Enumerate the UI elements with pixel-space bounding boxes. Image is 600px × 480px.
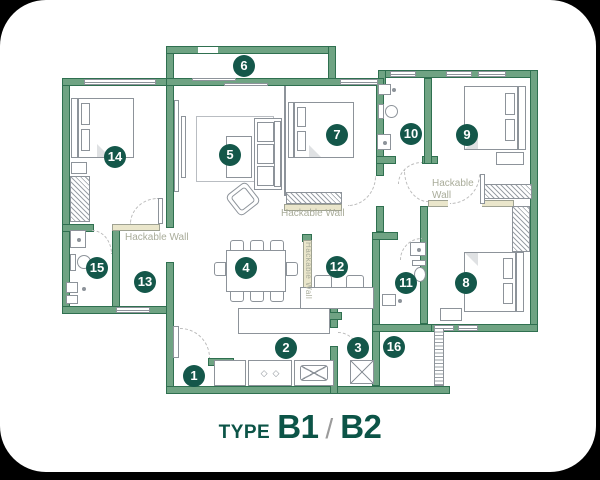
- window: [446, 71, 472, 77]
- title-separator: /: [325, 413, 333, 445]
- sofa-cushion: [257, 166, 274, 186]
- room-badge-5: 5: [219, 144, 241, 166]
- sofa-cushion: [257, 144, 274, 164]
- plan-title: TYPE B1 / B2: [0, 408, 600, 446]
- title-type-label: TYPE: [219, 422, 271, 444]
- shower-head-icon: [398, 299, 402, 303]
- sink-basin: [300, 365, 328, 381]
- sofa-back: [274, 121, 281, 187]
- wardrobe-icon: [484, 184, 532, 199]
- toilet-tank: [70, 254, 76, 271]
- wardrobe-icon: [286, 192, 342, 204]
- room-badge-4: 4: [235, 257, 257, 279]
- sink-icon: [377, 134, 391, 150]
- nightstand-icon: [440, 308, 462, 321]
- wall: [112, 226, 120, 314]
- pillow: [297, 107, 306, 127]
- shower-icon: [378, 84, 391, 95]
- balcony-opening: [198, 47, 218, 53]
- door-arc: [130, 198, 158, 224]
- door-leaf: [158, 198, 163, 224]
- hackable-wall-label: Hackable Wall: [125, 232, 220, 244]
- pillow: [81, 129, 90, 151]
- wall: [166, 78, 174, 228]
- wall: [62, 78, 70, 314]
- washing-machine-icon: [350, 360, 374, 384]
- wall: [376, 156, 396, 164]
- room-badge-16: 16: [383, 336, 405, 358]
- toilet-tank: [378, 104, 384, 119]
- tap-icon: [82, 287, 86, 291]
- room-badge-15: 15: [86, 257, 108, 279]
- nightstand-icon: [71, 162, 87, 174]
- window: [116, 307, 150, 313]
- armchair-seat: [230, 186, 255, 211]
- pillow: [81, 103, 90, 125]
- toilet-tank: [412, 260, 426, 266]
- bed-headboard: [516, 252, 524, 312]
- partition-wall: [284, 86, 286, 196]
- door-leaf: [173, 326, 179, 358]
- room-badge-2: 2: [275, 337, 297, 359]
- wall: [372, 232, 398, 240]
- door-arc: [404, 170, 428, 202]
- wardrobe-icon: [70, 176, 90, 222]
- window: [340, 79, 378, 85]
- room-badge-9: 9: [456, 124, 478, 146]
- wall: [424, 78, 432, 164]
- title-plan-b: B2: [340, 408, 381, 446]
- chair-icon: [286, 262, 298, 276]
- wardrobe-icon: [512, 206, 530, 252]
- room-badge-14: 14: [104, 146, 126, 168]
- bed-headboard: [71, 98, 78, 158]
- room-badge-13: 13: [134, 271, 156, 293]
- tv-icon: [181, 116, 186, 178]
- door-arc: [400, 238, 422, 260]
- shower-icon: [382, 294, 396, 306]
- wall: [530, 70, 538, 332]
- blanket-fold: [309, 145, 321, 157]
- hackable-wall: [112, 224, 160, 231]
- door-arc: [180, 328, 210, 358]
- bath-cabinet: [66, 295, 78, 304]
- room-badge-3: 3: [347, 337, 369, 359]
- blanket-fold: [465, 253, 478, 266]
- window: [458, 325, 478, 331]
- sliding-door: [224, 83, 268, 86]
- wall: [372, 324, 432, 332]
- toilet-icon: [385, 105, 398, 118]
- hackable-wall-label: Hackable Wall: [281, 208, 376, 220]
- room-badge-8: 8: [455, 272, 477, 294]
- kitchen-island: [238, 308, 330, 334]
- sink-icon: [70, 230, 86, 248]
- room-badge-7: 7: [326, 124, 348, 146]
- bed-headboard: [518, 86, 526, 150]
- room-badge-1: 1: [183, 365, 205, 387]
- kitchen-counter: [214, 360, 246, 386]
- bath-cabinet: [66, 282, 78, 293]
- title-plan-a: B1: [277, 408, 318, 446]
- pillow: [503, 283, 513, 304]
- pillow: [297, 131, 306, 151]
- door-arc: [92, 230, 112, 254]
- room-badge-6: 6: [233, 55, 255, 77]
- door-arc: [348, 176, 376, 206]
- wall: [166, 386, 450, 394]
- sofa-cushion: [257, 122, 274, 142]
- kitchen-sink-icon: [294, 360, 334, 386]
- ac-ledge-louver: [434, 328, 444, 386]
- pillow: [505, 119, 515, 141]
- room-badge-10: 10: [400, 123, 422, 145]
- hackable-wall-label: Hackable Wall: [304, 242, 313, 316]
- wall: [376, 206, 384, 232]
- nightstand-icon: [496, 152, 524, 165]
- window: [478, 71, 506, 77]
- wall: [166, 46, 336, 54]
- window: [390, 71, 416, 77]
- sliding-door: [192, 78, 236, 81]
- chair-icon: [214, 262, 226, 276]
- floor-plan: ◇◇ Hackable Wall Hackable Wall Hackable …: [0, 0, 600, 480]
- hob-icon: ◇◇: [248, 360, 292, 386]
- tv-console-icon: [174, 100, 179, 192]
- room-badge-12: 12: [326, 256, 348, 278]
- hackable-wall-label: Hackable Wall: [432, 178, 484, 201]
- sofa-icon: [254, 118, 282, 190]
- pillow: [505, 93, 515, 115]
- shower-head-icon: [392, 88, 396, 92]
- pillow: [503, 258, 513, 279]
- room-badge-11: 11: [395, 272, 417, 294]
- window: [84, 79, 156, 85]
